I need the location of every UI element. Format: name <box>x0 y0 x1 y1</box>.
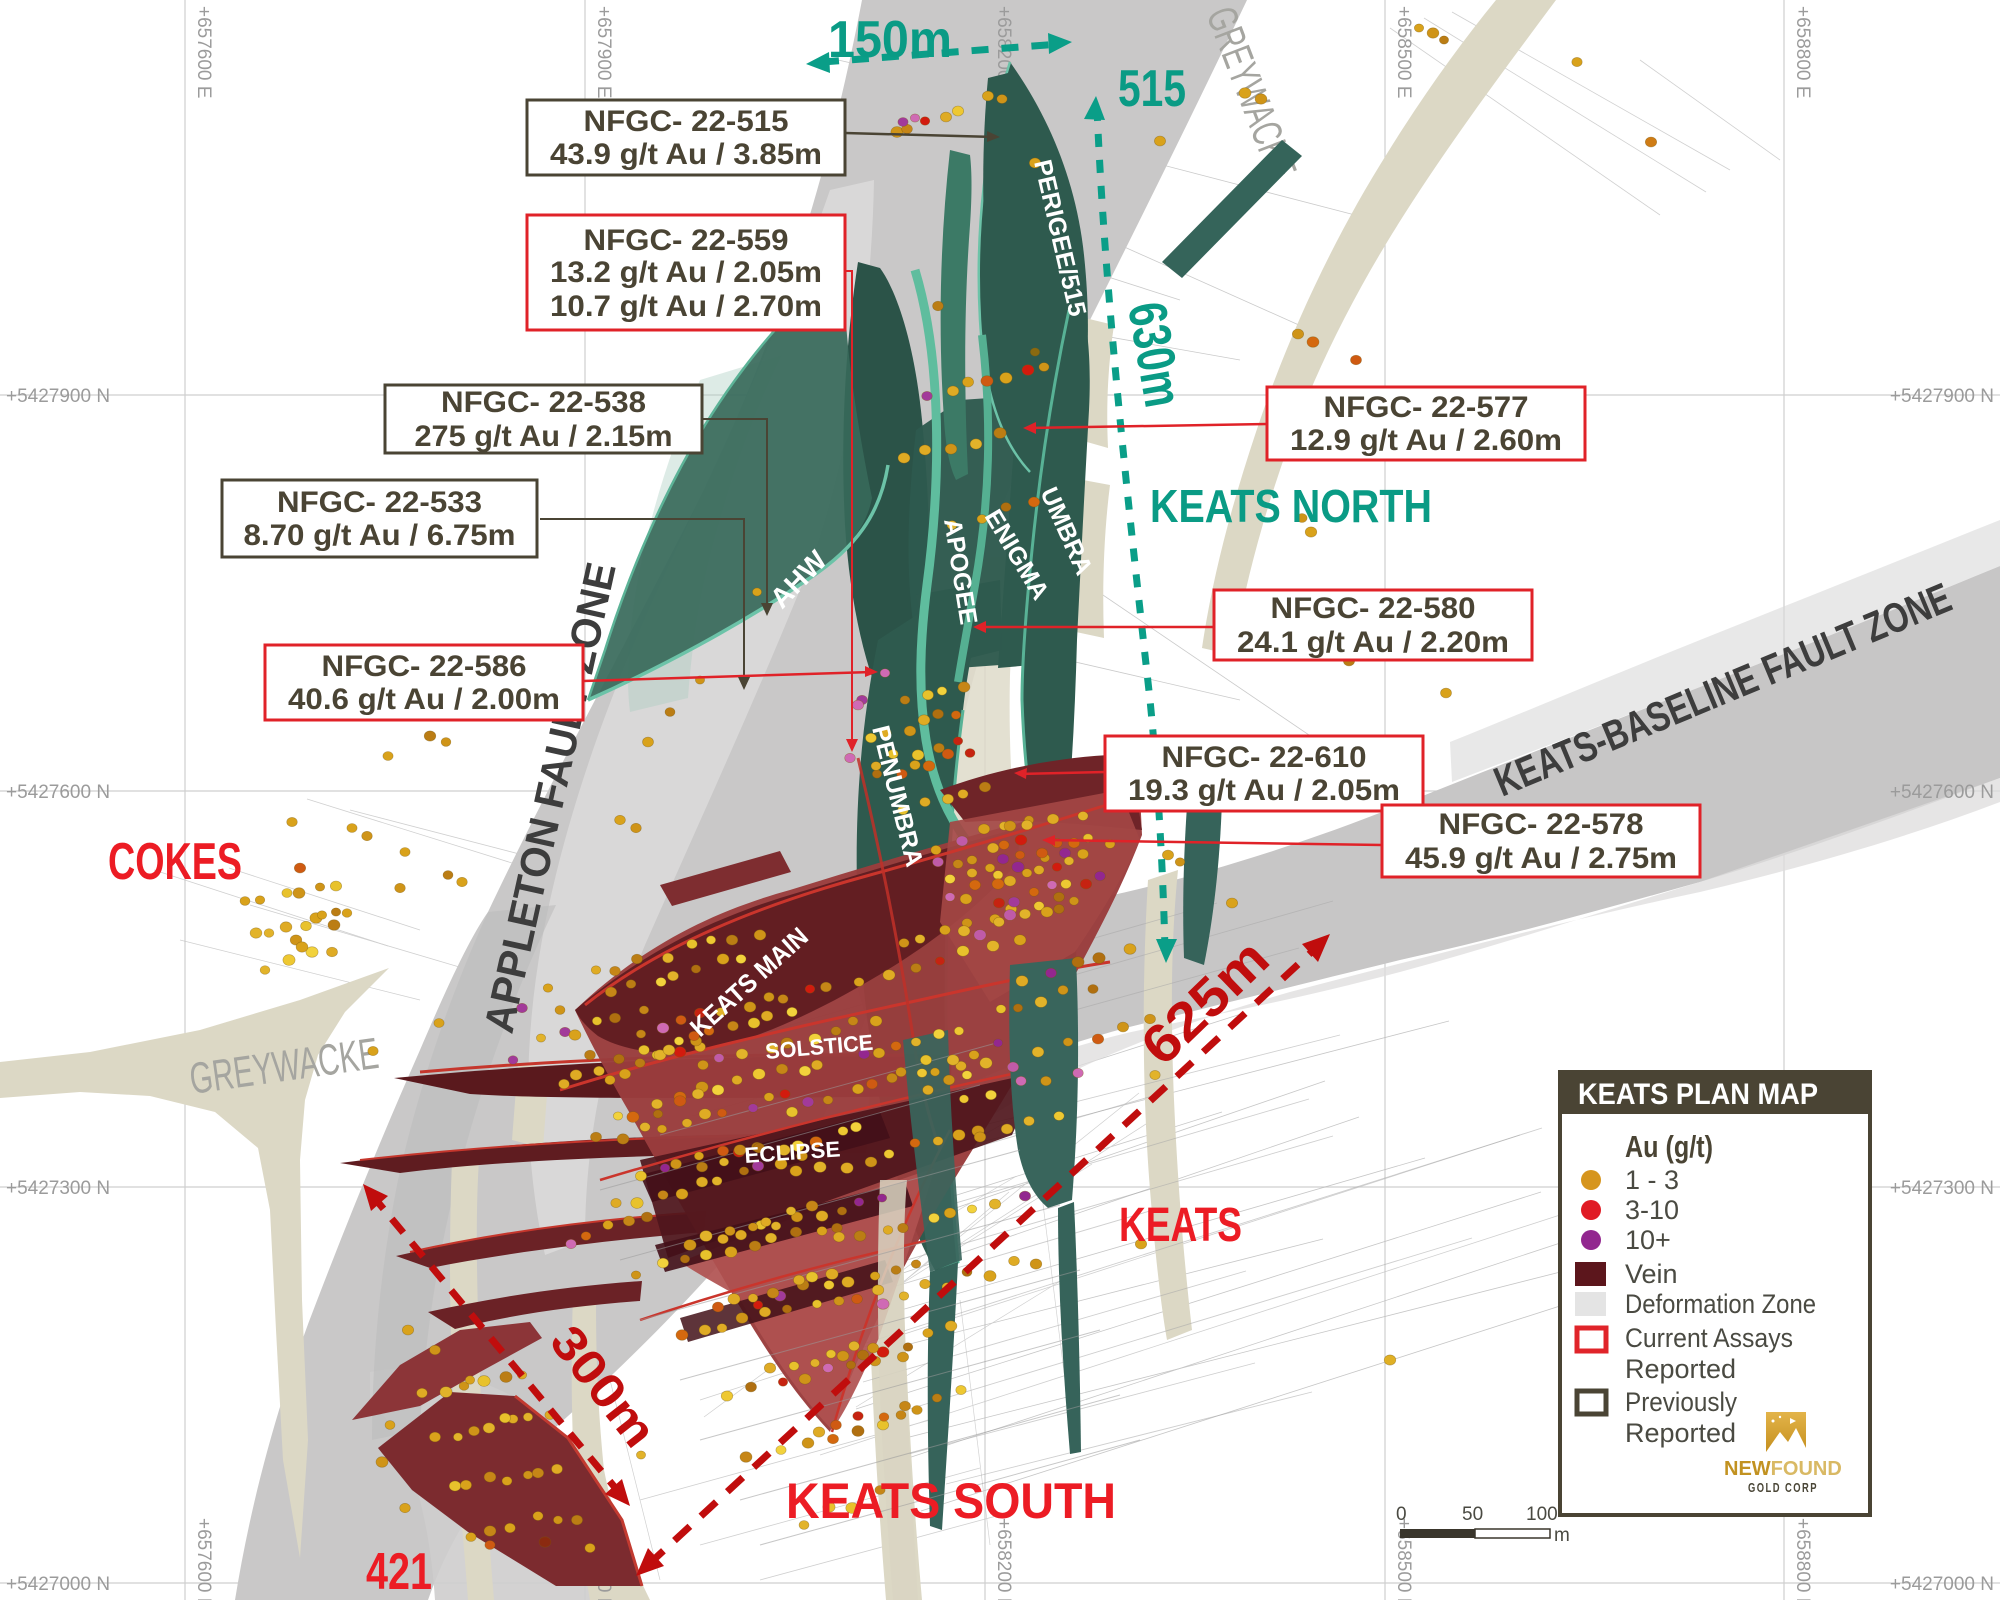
svg-text:+658800 E: +658800 E <box>1792 6 1813 98</box>
svg-text:Previously: Previously <box>1625 1387 1737 1417</box>
svg-text:275 g/t Au / 2.15m: 275 g/t Au / 2.15m <box>415 420 673 453</box>
svg-text:NFGC- 22-538: NFGC- 22-538 <box>441 386 646 419</box>
svg-text:+658200 E: +658200 E <box>993 1518 1014 1600</box>
svg-text:+5427000 N: +5427000 N <box>6 1574 110 1595</box>
svg-text:Current Assays: Current Assays <box>1625 1323 1793 1353</box>
svg-text:GOLD CORP: GOLD CORP <box>1748 1480 1818 1495</box>
svg-text:+658800 E: +658800 E <box>1792 1518 1813 1600</box>
svg-text:100: 100 <box>1526 1504 1558 1525</box>
svg-text:+5427600 N: +5427600 N <box>6 782 110 803</box>
svg-text:+5427600 N: +5427600 N <box>1890 782 1994 803</box>
svg-text:421: 421 <box>366 1543 432 1600</box>
svg-text:NFGC- 22-515: NFGC- 22-515 <box>584 105 789 138</box>
svg-text:Au (g/t): Au (g/t) <box>1625 1129 1713 1164</box>
svg-text:KEATS SOUTH: KEATS SOUTH <box>786 1473 1116 1529</box>
svg-text:40.6 g/t Au / 2.00m: 40.6 g/t Au / 2.00m <box>288 683 560 716</box>
svg-text:45.9 g/t Au / 2.75m: 45.9 g/t Au / 2.75m <box>1405 842 1677 875</box>
svg-text:Reported: Reported <box>1625 1354 1736 1384</box>
svg-text:+658500 E: +658500 E <box>1393 6 1414 98</box>
svg-text:NFGC- 22-577: NFGC- 22-577 <box>1324 391 1529 424</box>
svg-text:Reported: Reported <box>1625 1418 1736 1448</box>
svg-text:3-10: 3-10 <box>1625 1195 1679 1225</box>
svg-text:NFGC- 22-610: NFGC- 22-610 <box>1162 741 1367 774</box>
svg-text:+657600 E: +657600 E <box>193 6 214 98</box>
svg-text:150m: 150m <box>828 11 952 69</box>
svg-text:COKES: COKES <box>108 833 242 891</box>
svg-text:515: 515 <box>1118 60 1186 118</box>
svg-text:+657600 E: +657600 E <box>193 1518 214 1600</box>
svg-text:13.2 g/t Au / 2.05m: 13.2 g/t Au / 2.05m <box>550 256 822 289</box>
svg-text:+5427900 N: +5427900 N <box>1890 386 1994 407</box>
svg-text:KEATS NORTH: KEATS NORTH <box>1150 480 1432 532</box>
svg-text:NFGC- 22-578: NFGC- 22-578 <box>1439 808 1644 841</box>
svg-text:8.70 g/t Au / 6.75m: 8.70 g/t Au / 6.75m <box>244 519 516 552</box>
svg-text:+5427000 N: +5427000 N <box>1890 1574 1994 1595</box>
svg-text:10.7 g/t Au / 2.70m: 10.7 g/t Au / 2.70m <box>550 290 822 323</box>
svg-text:NFGC- 22-533: NFGC- 22-533 <box>277 486 482 519</box>
svg-text:Deformation Zone: Deformation Zone <box>1625 1289 1816 1319</box>
svg-text:1 - 3: 1 - 3 <box>1625 1165 1679 1195</box>
svg-text:+5427300 N: +5427300 N <box>6 1178 110 1199</box>
svg-text:24.1 g/t Au / 2.20m: 24.1 g/t Au / 2.20m <box>1237 626 1509 659</box>
svg-text:KEATS: KEATS <box>1119 1199 1242 1252</box>
svg-text:Vein: Vein <box>1625 1259 1678 1289</box>
svg-text:50: 50 <box>1462 1504 1483 1525</box>
svg-text:KEATS PLAN MAP: KEATS PLAN MAP <box>1578 1078 1818 1111</box>
svg-text:+5427900 N: +5427900 N <box>6 386 110 407</box>
svg-text:10+: 10+ <box>1625 1225 1671 1255</box>
svg-text:NEWFOUND: NEWFOUND <box>1724 1458 1842 1480</box>
svg-text:NFGC- 22-586: NFGC- 22-586 <box>322 650 527 683</box>
svg-text:19.3 g/t Au / 2.05m: 19.3 g/t Au / 2.05m <box>1128 774 1400 807</box>
svg-text:43.9 g/t Au / 3.85m: 43.9 g/t Au / 3.85m <box>550 138 822 171</box>
svg-text:+5427300 N: +5427300 N <box>1890 1178 1994 1199</box>
svg-text:m: m <box>1554 1525 1570 1546</box>
svg-text:12.9 g/t Au / 2.60m: 12.9 g/t Au / 2.60m <box>1290 424 1562 457</box>
svg-text:NFGC- 22-580: NFGC- 22-580 <box>1271 592 1476 625</box>
svg-text:0: 0 <box>1396 1504 1407 1525</box>
svg-text:+657900 E: +657900 E <box>593 6 614 98</box>
svg-text:NFGC- 22-559: NFGC- 22-559 <box>584 224 789 257</box>
